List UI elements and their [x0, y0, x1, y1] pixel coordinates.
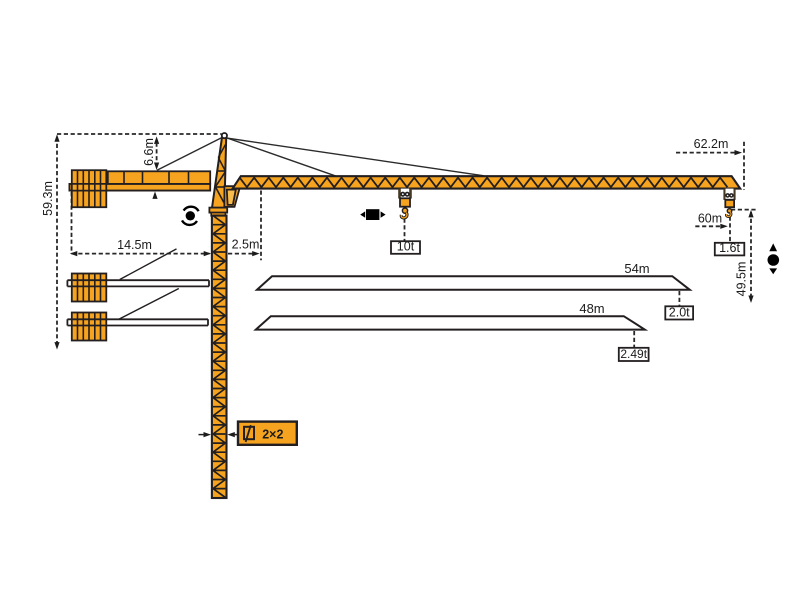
svg-text:14.5m: 14.5m	[117, 238, 152, 252]
svg-text:1.6t: 1.6t	[719, 241, 740, 255]
svg-text:54m: 54m	[624, 261, 649, 276]
svg-text:59.3m: 59.3m	[41, 181, 55, 216]
svg-text:62.2m: 62.2m	[694, 137, 729, 151]
svg-text:6.6m: 6.6m	[142, 138, 156, 166]
svg-text:48m: 48m	[579, 301, 604, 316]
svg-text:2×2: 2×2	[262, 427, 283, 441]
svg-text:60m: 60m	[698, 211, 722, 225]
svg-text:2.49t: 2.49t	[620, 347, 647, 361]
svg-text:49.5m: 49.5m	[735, 262, 749, 297]
svg-text:2.0t: 2.0t	[669, 305, 690, 319]
svg-text:2.5m: 2.5m	[232, 237, 260, 251]
svg-text:10t: 10t	[397, 240, 415, 254]
